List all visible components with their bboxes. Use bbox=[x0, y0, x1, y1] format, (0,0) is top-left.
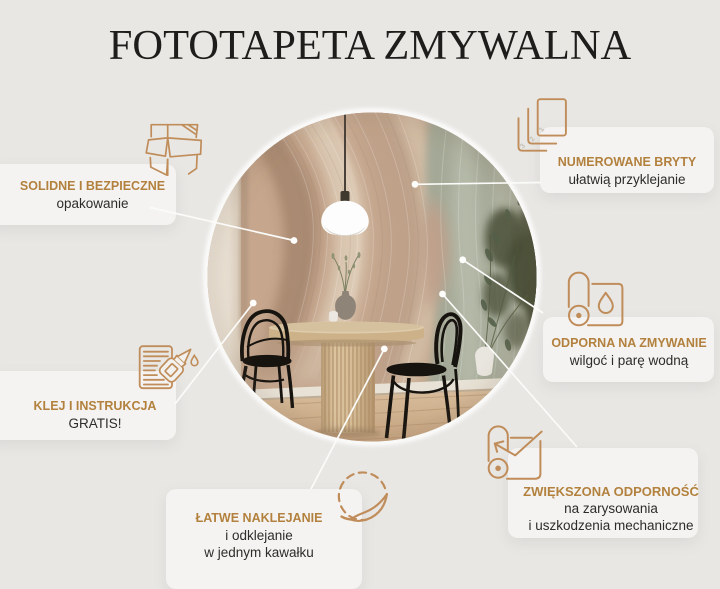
svg-text:1: 1 bbox=[538, 126, 546, 133]
svg-text:3: 3 bbox=[519, 143, 527, 150]
